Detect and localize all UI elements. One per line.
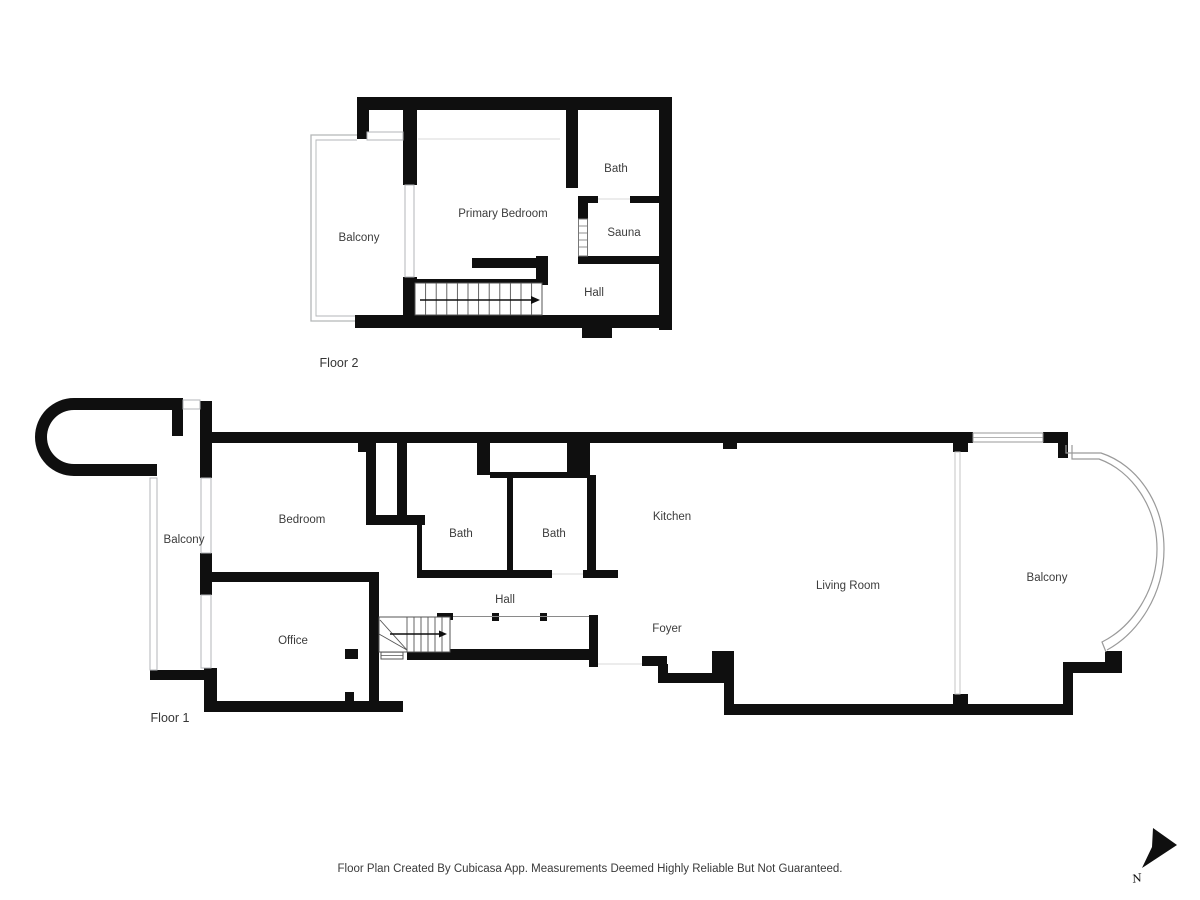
floor2-room-label-hall: Hall	[584, 287, 604, 299]
floor2-balcony-railing	[311, 135, 357, 321]
floor1-room-label-balcony-west: Balcony	[164, 534, 205, 546]
floor1-room-label-bath-b: Bath	[542, 528, 566, 540]
floor1-window-west-b	[201, 595, 211, 668]
floor1-window-north-east	[973, 433, 1043, 442]
floor2-room-label-balcony: Balcony	[339, 232, 380, 244]
compass: N	[1130, 828, 1177, 886]
floor2-room-label-primary-bedroom: Primary Bedroom	[458, 208, 547, 220]
floor2-balcony-railing-inner	[316, 140, 357, 316]
floor2-title: Floor 2	[320, 356, 359, 370]
floor1-title: Floor 1	[151, 711, 190, 725]
floor2-plan: Balcony Primary Bedroom Bath Sauna Hall …	[311, 97, 672, 370]
turret-opening	[183, 400, 200, 409]
floor1-room-label-hall: Hall	[495, 594, 515, 606]
north-label: N	[1130, 871, 1143, 886]
floor1-room-label-foyer: Foyer	[652, 623, 682, 635]
turret-wall	[35, 398, 173, 476]
floor1-east-balcony-railing	[1066, 445, 1164, 652]
floor-plan-canvas: Balcony Primary Bedroom Bath Sauna Hall …	[0, 0, 1200, 900]
floor2-balcony-window	[367, 132, 403, 140]
floor2-room-label-bath: Bath	[604, 163, 628, 175]
floor1-room-label-bath-a: Bath	[449, 528, 473, 540]
floor2-balcony-door	[405, 185, 414, 277]
disclaimer-text: Floor Plan Created By Cubicasa App. Meas…	[338, 863, 843, 875]
floor1-plan: Balcony Bedroom Bath Bath Kitchen Hall O…	[35, 398, 1164, 725]
floor2-room-label-sauna: Sauna	[607, 227, 641, 239]
floor1-room-label-office: Office	[278, 635, 308, 647]
floor1-room-label-kitchen: Kitchen	[653, 511, 691, 523]
floor2-sauna-door	[579, 219, 588, 256]
floor-plan-page: Balcony Primary Bedroom Bath Sauna Hall …	[0, 0, 1200, 900]
floor1-room-label-living-room: Living Room	[816, 580, 880, 592]
floor1-room-label-balcony-east: Balcony	[1027, 572, 1068, 584]
floor1-west-balcony-railing	[150, 478, 157, 670]
floor2-stairs	[415, 283, 542, 315]
floor1-room-label-bedroom: Bedroom	[279, 514, 326, 526]
north-arrow-icon	[1142, 828, 1177, 868]
floor1-stairs	[379, 617, 450, 652]
living-room-balcony-divider	[955, 452, 960, 694]
